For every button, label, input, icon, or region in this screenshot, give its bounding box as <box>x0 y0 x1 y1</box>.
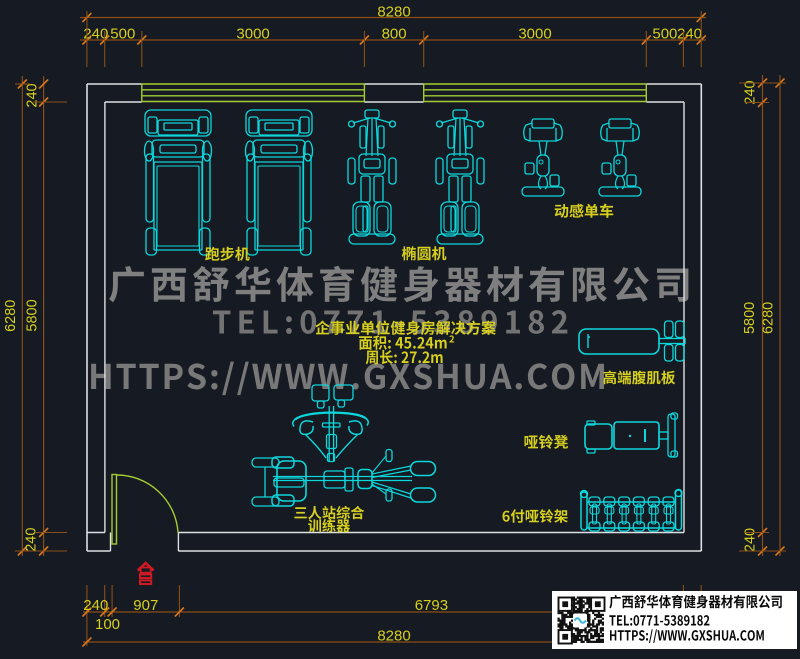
svg-text:240: 240 <box>743 80 759 104</box>
svg-text:5800: 5800 <box>25 299 41 331</box>
svg-text:3000: 3000 <box>518 26 551 43</box>
svg-text:6280: 6280 <box>760 302 776 334</box>
svg-text:240: 240 <box>83 597 108 614</box>
svg-text:3000: 3000 <box>236 26 269 43</box>
svg-text:100: 100 <box>95 616 120 633</box>
svg-text:8280: 8280 <box>377 4 410 21</box>
svg-text:500: 500 <box>652 26 677 43</box>
svg-text:800: 800 <box>382 26 407 43</box>
svg-text:6793: 6793 <box>415 597 448 614</box>
svg-text:240: 240 <box>743 528 759 552</box>
svg-text:240: 240 <box>24 528 40 552</box>
svg-text:5800: 5800 <box>742 302 758 334</box>
svg-text:500: 500 <box>110 26 135 43</box>
svg-text:907: 907 <box>133 597 158 614</box>
svg-text:6280: 6280 <box>3 300 19 332</box>
svg-text:240: 240 <box>25 83 41 107</box>
svg-text:8280: 8280 <box>377 628 410 645</box>
svg-text:240: 240 <box>677 26 702 43</box>
